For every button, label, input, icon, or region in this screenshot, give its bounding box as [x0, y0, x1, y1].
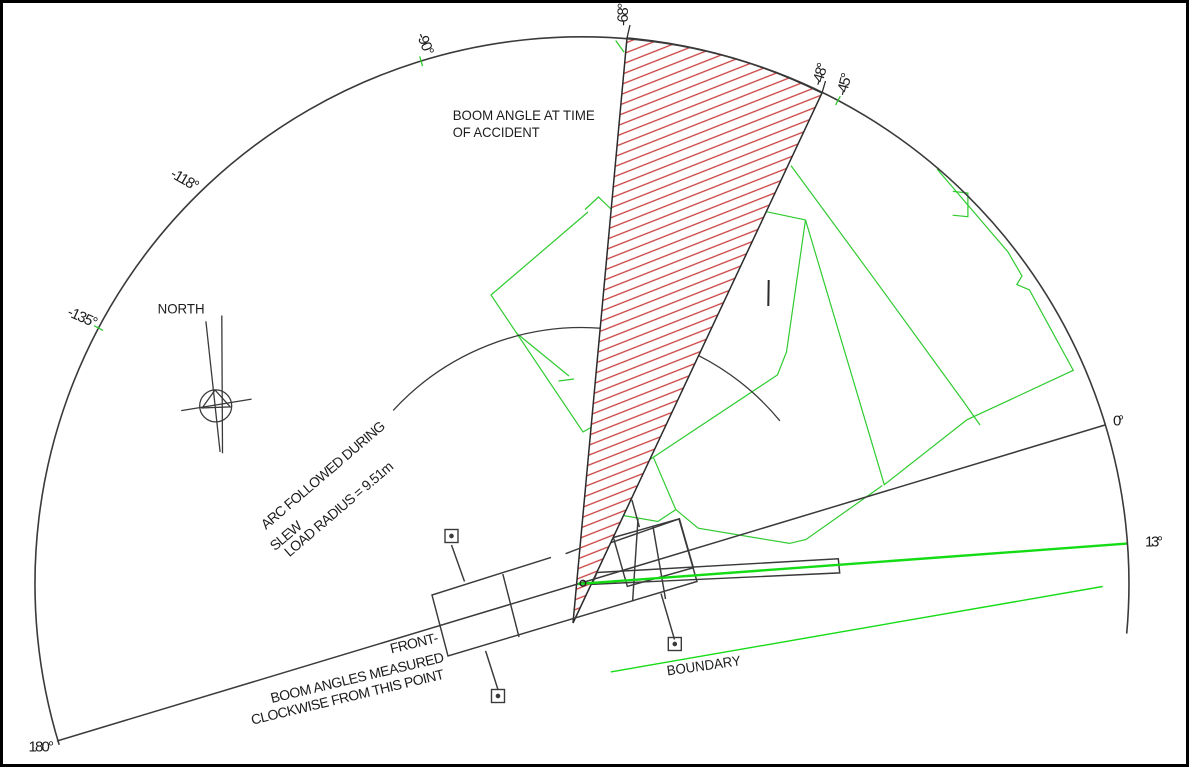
svg-text:-45°: -45° — [833, 71, 855, 98]
svg-text:-135°: -135° — [65, 304, 100, 332]
svg-text:OF ACCIDENT: OF ACCIDENT — [453, 124, 540, 140]
svg-text:BOOM ANGLE AT TIME: BOOM ANGLE AT TIME — [453, 107, 595, 123]
svg-text:-90°: -90° — [413, 30, 437, 58]
svg-text:180°: 180° — [29, 739, 55, 756]
svg-text:13°: 13° — [1145, 534, 1163, 551]
svg-text:0°: 0° — [1113, 413, 1124, 430]
svg-text:NORTH: NORTH — [158, 300, 205, 316]
svg-text:LOAD RADIUS = 9.51m: LOAD RADIUS = 9.51m — [281, 458, 396, 560]
svg-text:-48°: -48° — [809, 61, 832, 88]
svg-text:-68°: -68° — [615, 3, 633, 26]
svg-text:-118°: -118° — [168, 165, 202, 195]
